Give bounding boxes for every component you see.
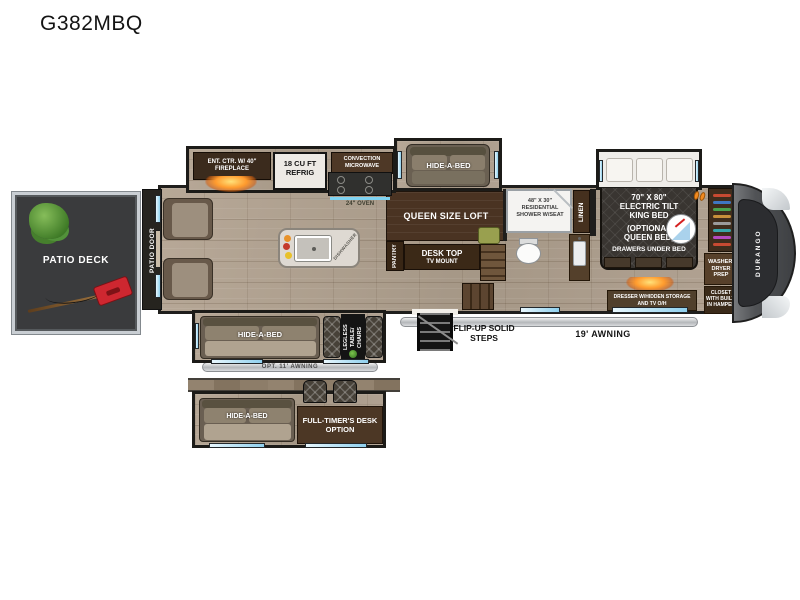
window xyxy=(612,307,688,313)
fireplace-icon xyxy=(205,176,257,192)
window xyxy=(209,443,265,448)
window xyxy=(695,160,699,182)
hide-a-bed-sofa: HIDE-A-BED xyxy=(406,144,490,187)
living-slideout: HIDE-A-BED LEGLESS TABLE/ CHAIRS xyxy=(192,310,386,363)
window xyxy=(195,323,199,349)
window xyxy=(323,359,369,364)
pillow xyxy=(666,158,693,182)
pillow xyxy=(606,158,633,182)
oven-label: 24" OVEN xyxy=(322,201,398,207)
loft-stairs xyxy=(480,244,506,281)
cap-accent xyxy=(762,296,790,318)
refrigerator: 18 CU FT REFRIG xyxy=(273,152,327,190)
legless-table: LEGLESS TABLE/ CHAIRS xyxy=(341,314,365,360)
front-cap: DURANGO xyxy=(732,183,796,323)
cap-panel: DURANGO xyxy=(738,199,778,307)
desk-chair xyxy=(303,380,327,403)
pillow xyxy=(636,158,663,182)
shower: 48" X 30" RESIDENTIAL SHOWER W/SEAT xyxy=(506,189,572,233)
convection-microwave: CONVECTION MICROWAVE xyxy=(331,152,393,174)
vanity-sink-icon xyxy=(573,241,586,266)
plant-icon xyxy=(349,350,357,358)
toilet-icon xyxy=(516,243,541,264)
under-bed-drawer xyxy=(635,257,662,268)
entry-landing-steps xyxy=(462,283,494,310)
bed-size-label: 70" X 80" xyxy=(600,193,698,202)
flip-up-steps xyxy=(417,313,453,351)
linen-label: LINEN xyxy=(578,194,585,230)
optional-section-wall xyxy=(188,378,400,392)
desk-chair xyxy=(478,227,500,244)
cooktop-trim xyxy=(330,197,390,200)
legless-table-label: LEGLESS TABLE/ CHAIRS xyxy=(343,323,364,351)
shower-label: 48" X 30" RESIDENTIAL SHOWER W/SEAT xyxy=(511,198,569,219)
tackle-box-icon xyxy=(93,275,134,306)
durango-logo: DURANGO xyxy=(755,208,762,298)
window xyxy=(599,160,603,182)
optional-awning-label: OPT. 11' AWNING xyxy=(262,364,318,370)
under-bed-drawer xyxy=(604,257,631,268)
desk-label-1: DESK TOP xyxy=(407,249,477,258)
linen-closet: LINEN xyxy=(573,190,590,233)
pantry: PANTRY xyxy=(386,241,404,271)
fruit-bowl-icon xyxy=(283,235,293,261)
king-bed-slideout xyxy=(596,149,702,190)
bedroom-wall xyxy=(590,189,596,236)
patio-deck-label: PATIO DECK xyxy=(15,255,137,266)
desk: DESK TOP TV MOUNT xyxy=(404,244,480,270)
kitchen-island: DISHWASHER xyxy=(278,228,360,268)
pantry-label: PANTRY xyxy=(392,242,398,270)
under-bed-drawer xyxy=(666,257,693,268)
dishwasher-label: DISHWASHER xyxy=(330,229,361,264)
vanity xyxy=(569,234,590,281)
desk-chair xyxy=(333,380,357,403)
patio-door: PATIO DOOR xyxy=(142,189,162,310)
patio-door-label: PATIO DOOR xyxy=(149,195,156,305)
hide-a-bed-sofa: HIDE-A-BED xyxy=(199,398,295,442)
bed-drawers-label: DRAWERS UNDER BED xyxy=(600,246,698,253)
hide-a-bed-label: HIDE-A-BED xyxy=(407,161,490,170)
window xyxy=(397,151,402,179)
flip-steps-label: FLIP-UP SOLID STEPS xyxy=(452,324,516,344)
full-timer-desk-label: FULL-TIMER'S DESK OPTION xyxy=(298,416,382,434)
recliner-seat xyxy=(163,258,213,300)
recliner-seat xyxy=(163,198,213,240)
dinette-cushion xyxy=(365,316,383,358)
hide-a-bed-label: HIDE-A-BED xyxy=(201,330,319,339)
window xyxy=(305,443,367,448)
full-timer-desk: FULL-TIMER'S DESK OPTION xyxy=(297,406,383,444)
plant-icon xyxy=(29,203,69,239)
hide-a-bed-slideout-top: HIDE-A-BED xyxy=(394,138,502,191)
desk-label-2: TV MOUNT xyxy=(407,259,477,265)
cooktop xyxy=(328,172,392,196)
sink-icon xyxy=(295,236,331,261)
tilt-bed-inset-icon xyxy=(666,214,696,244)
main-awning-label: 19' AWNING xyxy=(553,329,653,339)
patio-deck: PATIO DECK xyxy=(12,192,140,334)
dresser-label: DRESSER W/HIDDEN STORAGE AND TV O/H xyxy=(610,294,694,307)
window xyxy=(494,151,499,179)
dinette-cushion xyxy=(323,316,341,358)
floorplan-page: G382MBQ PATIO DECK PATIO DOOR ENT. CTR. … xyxy=(0,0,800,600)
hide-a-bed-label: HIDE-A-BED xyxy=(200,413,294,420)
queen-loft-label: QUEEN SIZE LOFT xyxy=(387,211,505,221)
page-title: G382MBQ xyxy=(40,12,280,42)
hide-a-bed-sofa: HIDE-A-BED xyxy=(200,316,320,359)
window xyxy=(211,359,263,364)
ent-ctr-label: ENT. CTR. W/ 40" FIREPLACE xyxy=(194,159,270,173)
window xyxy=(520,307,560,313)
